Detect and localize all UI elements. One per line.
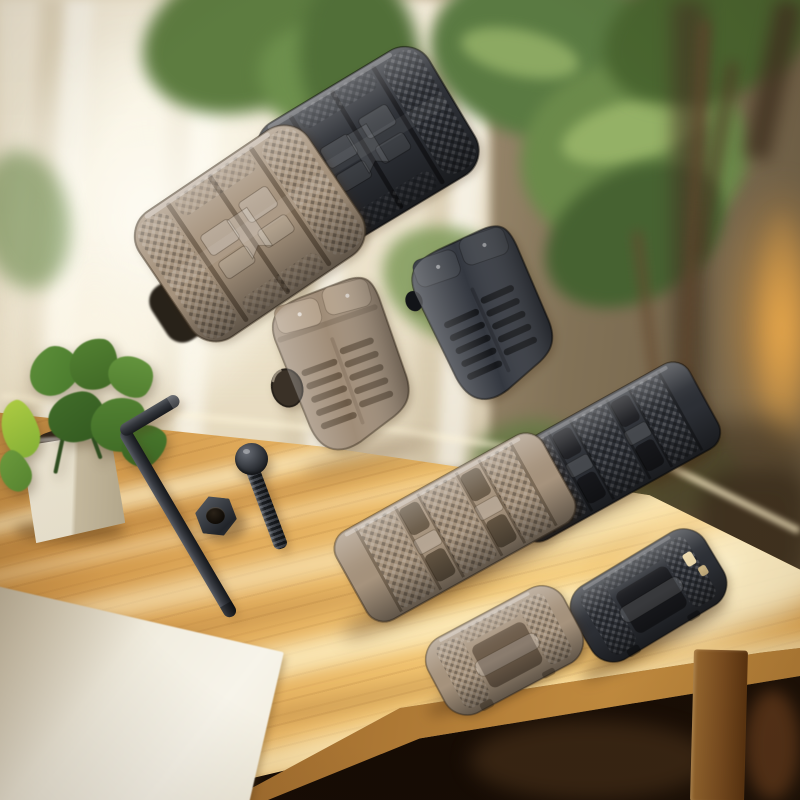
table-leg <box>690 649 748 800</box>
under-table-reflection <box>470 720 710 800</box>
hex-nut-hole <box>206 507 225 524</box>
under-table-warm-patch <box>745 690 800 800</box>
product-photo-scene <box>0 0 800 800</box>
pothos-plant <box>0 330 165 550</box>
screw-button-head <box>235 443 268 475</box>
